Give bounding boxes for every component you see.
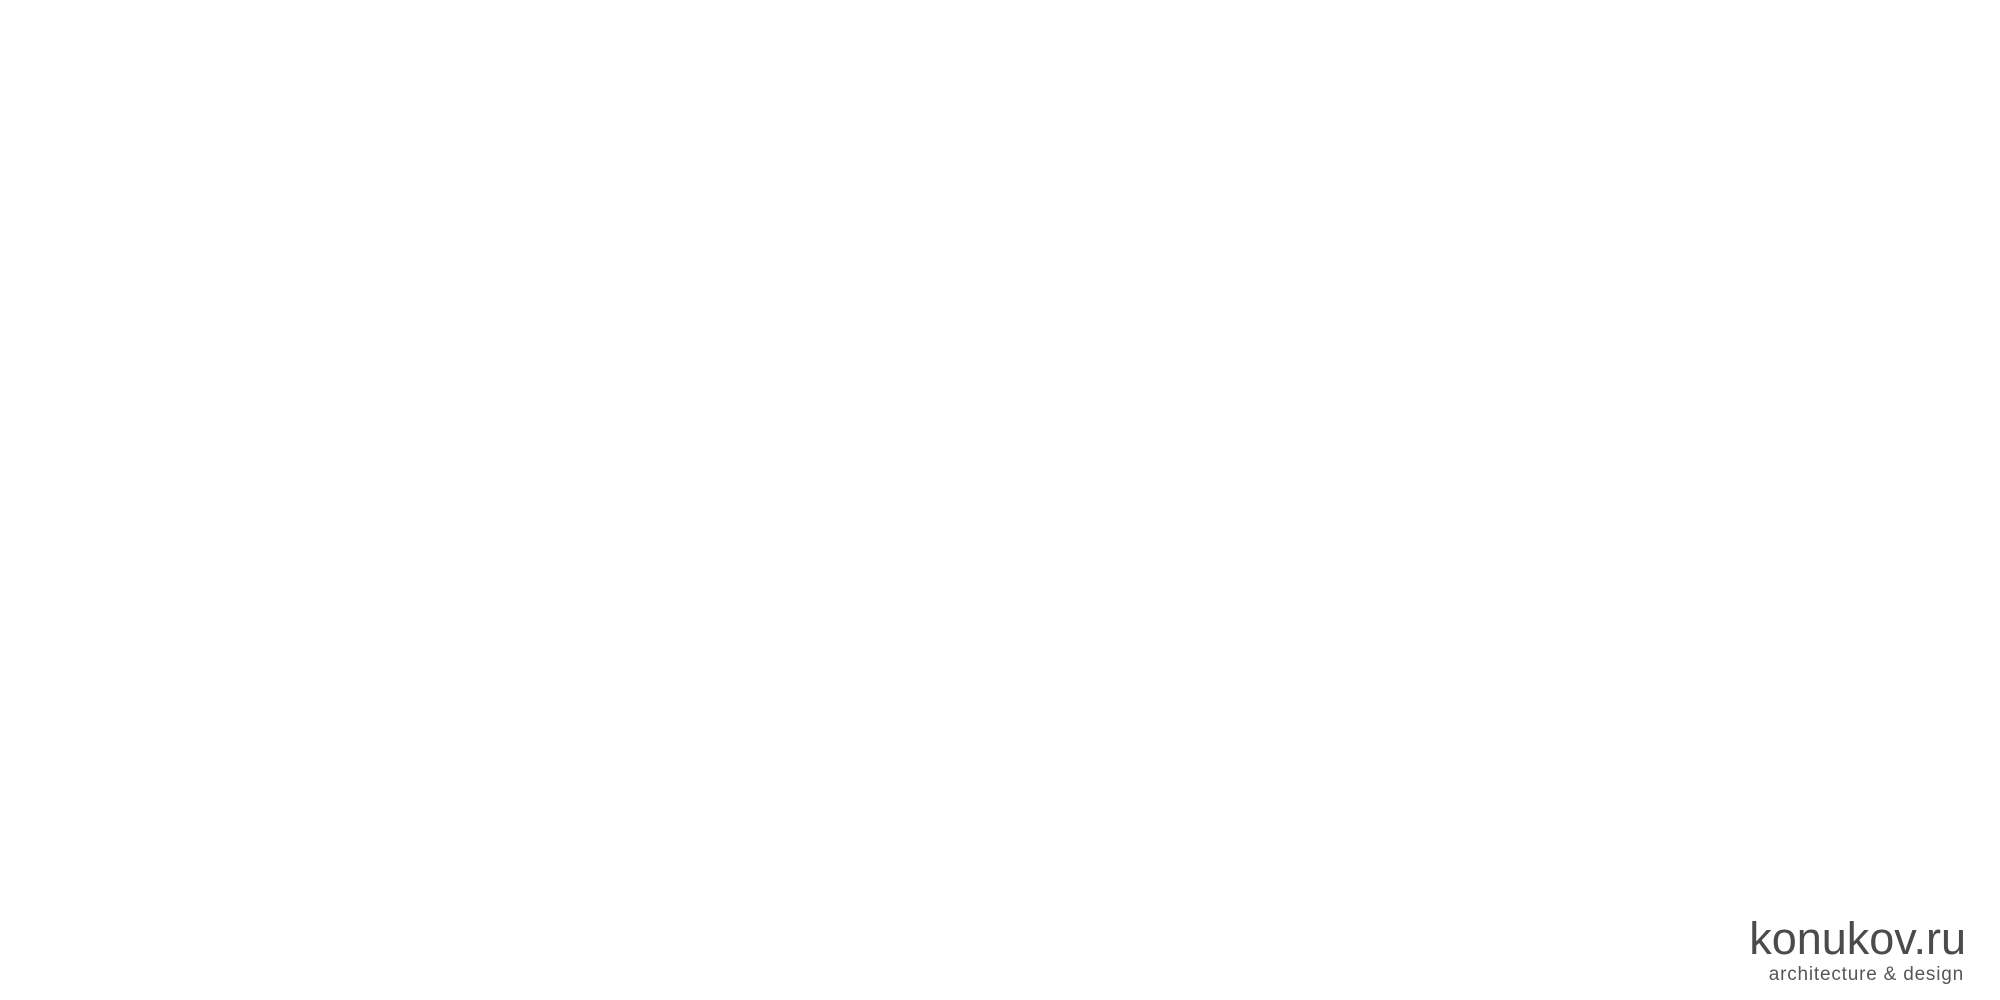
architectural-rendering: konukov.ru architecture & design [0,0,2000,1000]
site-plan-drawing [0,0,2000,1000]
logo-title: konukov.ru [1749,916,1966,961]
logo-subtitle: architecture & design [1749,964,1964,986]
studio-logo: konukov.ru architecture & design [1749,916,1966,986]
